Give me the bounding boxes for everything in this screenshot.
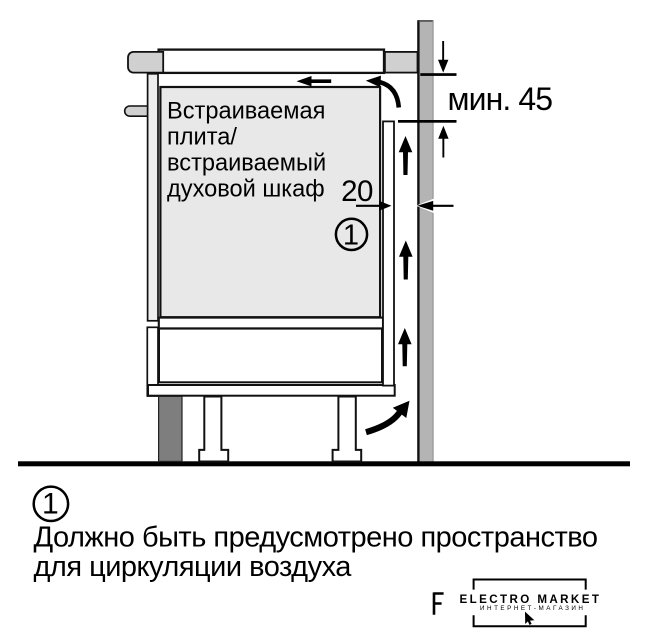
svg-text:духовой шкаф: духовой шкаф [167, 176, 325, 202]
svg-text:Встраиваемая: Встраиваемая [167, 99, 325, 125]
svg-text:встраиваемый: встраиваемый [167, 151, 326, 177]
svg-text:Должно быть предусмотрено прос: Должно быть предусмотрено пространство [34, 522, 598, 554]
svg-text:ИНТЕРНЕТ-МАГАЗИН: ИНТЕРНЕТ-МАГАЗИН [480, 605, 585, 612]
svg-text:1: 1 [343, 220, 359, 252]
svg-text:ELECTRO MARKET: ELECTRO MARKET [460, 593, 602, 606]
svg-text:для циркуляции воздуха: для циркуляции воздуха [34, 551, 353, 583]
svg-text:20: 20 [341, 175, 373, 208]
svg-text:мин. 45: мин. 45 [448, 81, 553, 117]
svg-text:плита/: плита/ [167, 125, 237, 151]
svg-text:1: 1 [42, 487, 59, 520]
